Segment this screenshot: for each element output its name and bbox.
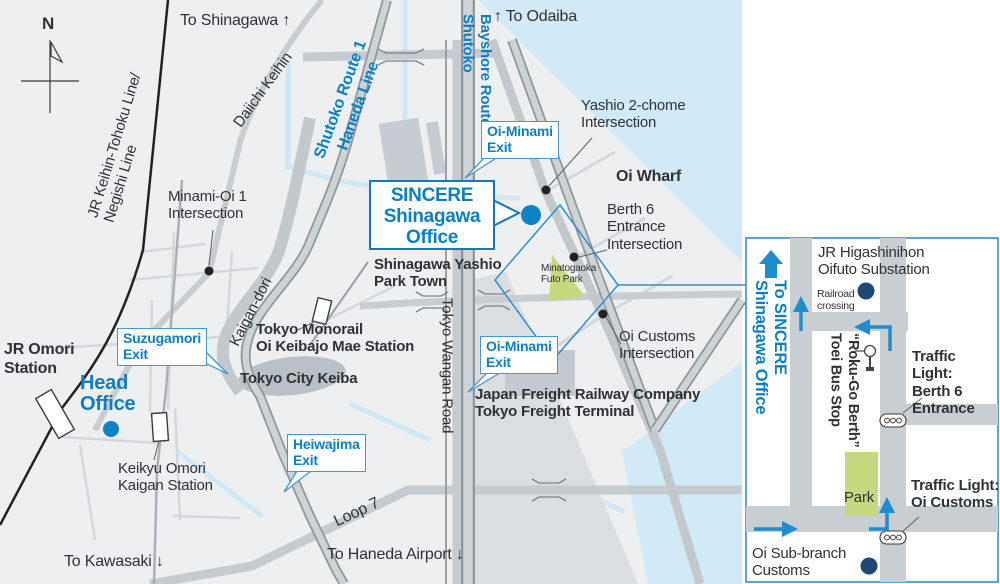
- panel-railroad-crossing-label: Railroad crossing: [817, 289, 855, 312]
- traffic-light-customs-icon: [880, 531, 906, 544]
- head-office-label: Head Office: [80, 373, 135, 415]
- park-town-label: Shinagawa Yashio Park Town: [374, 256, 501, 291]
- dir-to-kawasaki: To Kawasaki ↓: [64, 553, 164, 572]
- panel-substation-label: JR Higashinihon Oifuto Substation: [818, 244, 930, 279]
- substation-marker: [858, 283, 875, 300]
- futo-park-label: Minatogaoka Futo Park: [541, 263, 596, 285]
- panel-tl-berth6-label: Traffic Light: Berth 6 Entrance: [912, 348, 1000, 418]
- minami-oi-intersection-label: Minami-Oi 1 Intersection: [168, 188, 247, 223]
- dir-to-odaiba: ↑ To Odaiba: [494, 8, 577, 27]
- oi-minami-exit-south-box: Oi-Minami Exit: [480, 336, 558, 374]
- suzugamori-exit-box: Suzugamori Exit: [117, 328, 207, 366]
- sincere-office-box: SINCERE Shinagawa Office: [369, 180, 495, 250]
- freight-terminal-label: Japan Freight Railway Company Tokyo Frei…: [475, 386, 700, 421]
- keikyu-station-label: Keikyu Omori Kaigan Station: [118, 460, 213, 495]
- berth6-intersection-label: Berth 6 Entrance Intersection: [607, 201, 682, 253]
- traffic-light-berth6-icon: [880, 414, 906, 427]
- panel-tl-customs-label: Traffic Light: Oi Customs: [911, 477, 999, 512]
- wangan-road-label: Tokyo Wangan Road: [438, 298, 455, 528]
- sincere-office-marker: [521, 205, 541, 225]
- city-keiba-label: Tokyo City Keiba: [240, 370, 357, 387]
- oi-wharf-label: Oi Wharf: [616, 168, 681, 187]
- compass-label: N: [42, 14, 54, 34]
- customs-office-marker: [861, 558, 878, 575]
- dir-to-haneda: To Haneda Airport ↓: [327, 546, 464, 565]
- oi-minami-exit-north-box: Oi-Minami Exit: [481, 121, 559, 159]
- panel-park-label: Park: [844, 489, 874, 506]
- jr-omori-station-label: JR Omori Station: [4, 341, 74, 378]
- monorail-station-label: Tokyo Monorail Oi Keibajo Mae Station: [256, 321, 414, 356]
- panel-bus-stop-label: Toei Bus Stop “Roku-Go Berth”: [826, 333, 861, 573]
- dir-to-shinagawa: To Shinagawa ↑: [180, 12, 290, 31]
- panel-customs-office-label: Oi Sub-branch Customs: [752, 545, 846, 580]
- panel-to-sincere-label: To SINCERE Shinagawa Office: [751, 280, 789, 560]
- keikyu-station-icon: [152, 413, 169, 442]
- head-office-marker: [103, 421, 119, 437]
- oi-customs-intersection-label: Oi Customs Intersection: [619, 328, 695, 363]
- heiwajima-exit-box: Heiwajima Exit: [287, 434, 366, 472]
- access-map: N To Shinagawa ↑ ↑ To Odaiba To Kawasaki…: [0, 0, 1000, 584]
- yashio-intersection-label: Yashio 2-chome Intersection: [581, 97, 685, 132]
